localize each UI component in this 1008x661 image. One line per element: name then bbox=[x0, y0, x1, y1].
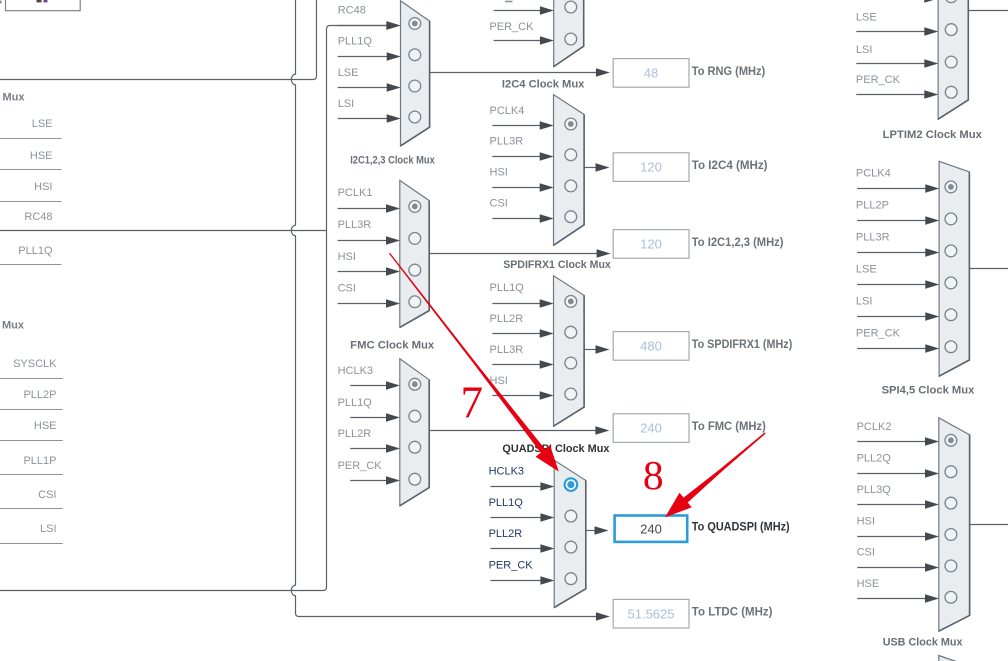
svg-text:USB Clock Mux: USB Clock Mux bbox=[883, 637, 964, 649]
svg-text:FMC Clock Mux: FMC Clock Mux bbox=[350, 339, 435, 351]
svg-text:RC48: RC48 bbox=[24, 211, 52, 223]
svg-text:To FMC (MHz): To FMC (MHz) bbox=[692, 421, 766, 433]
svg-text:SPDIFRX1 Clock Mux: SPDIFRX1 Clock Mux bbox=[503, 259, 611, 271]
svg-text:51.5625: 51.5625 bbox=[628, 606, 675, 621]
svg-text:CSI: CSI bbox=[857, 547, 875, 559]
svg-text:CSI: CSI bbox=[490, 198, 508, 210]
svg-text:LSI: LSI bbox=[338, 98, 355, 110]
svg-text:PLL2R: PLL2R bbox=[490, 313, 524, 325]
svg-text:240: 240 bbox=[640, 421, 662, 436]
svg-text:To I2C4 (MHz): To I2C4 (MHz) bbox=[692, 160, 768, 172]
svg-text:PLL2P: PLL2P bbox=[23, 389, 56, 401]
svg-text:HCLK3: HCLK3 bbox=[489, 465, 524, 477]
svg-text:Mux: Mux bbox=[3, 92, 26, 104]
svg-text:PER_CK: PER_CK bbox=[489, 21, 534, 33]
svg-text:PLL3R: PLL3R bbox=[856, 232, 890, 244]
svg-text:PLL2R: PLL2R bbox=[338, 428, 372, 440]
svg-text:PLL1Q: PLL1Q bbox=[338, 36, 373, 48]
svg-text:LSI: LSI bbox=[856, 44, 873, 56]
svg-text:HSI: HSI bbox=[857, 515, 875, 527]
svg-text:7: 7 bbox=[460, 378, 483, 428]
svg-text:PLL3R: PLL3R bbox=[338, 219, 372, 231]
svg-text:PLL1P: PLL1P bbox=[23, 455, 56, 467]
svg-text:RC48: RC48 bbox=[338, 4, 366, 16]
svg-text:HSE: HSE bbox=[34, 420, 57, 432]
svg-text:LSI: LSI bbox=[40, 523, 57, 535]
svg-text:I2C4 Clock Mux: I2C4 Clock Mux bbox=[502, 79, 585, 91]
svg-text:To I2C1,2,3 (MHz): To I2C1,2,3 (MHz) bbox=[692, 237, 784, 249]
svg-text:LSI: LSI bbox=[856, 296, 873, 308]
svg-text:LPTIM2 Clock Mux: LPTIM2 Clock Mux bbox=[883, 129, 983, 141]
svg-text:HSE: HSE bbox=[857, 578, 880, 590]
svg-text:HSI: HSI bbox=[34, 181, 52, 193]
svg-text:HSI: HSI bbox=[490, 167, 508, 179]
svg-text:8: 8 bbox=[643, 452, 664, 498]
svg-text:PLL2P: PLL2P bbox=[856, 200, 889, 212]
svg-text:PLL3R: PLL3R bbox=[490, 344, 524, 356]
svg-text:To SPDIFRX1 (MHz): To SPDIFRX1 (MHz) bbox=[692, 339, 793, 351]
svg-text:PLL1Q: PLL1Q bbox=[18, 245, 53, 257]
svg-text:QUADSPI Clock Mux: QUADSPI Clock Mux bbox=[502, 443, 610, 455]
svg-text:PER_CK: PER_CK bbox=[856, 328, 901, 340]
svg-text:PLL2R: PLL2R bbox=[489, 528, 523, 540]
svg-text:PCLK1: PCLK1 bbox=[338, 187, 373, 199]
svg-text:To LTDC (MHz): To LTDC (MHz) bbox=[692, 607, 773, 619]
svg-text:LSE: LSE bbox=[32, 118, 53, 130]
svg-text:120: 120 bbox=[640, 237, 662, 252]
svg-text:PLL3Q: PLL3Q bbox=[857, 484, 892, 496]
svg-text:48: 48 bbox=[644, 66, 658, 81]
svg-text:I2C1,2,3 Clock Mux: I2C1,2,3 Clock Mux bbox=[350, 154, 435, 166]
svg-text:HCLK3: HCLK3 bbox=[338, 365, 373, 377]
svg-text:To RNG (MHz): To RNG (MHz) bbox=[692, 66, 766, 78]
svg-text:PCLK4: PCLK4 bbox=[856, 168, 891, 180]
svg-text:PLL3R: PLL3R bbox=[490, 136, 524, 148]
svg-text:PCLK2: PCLK2 bbox=[857, 421, 892, 433]
svg-text:SPI4,5 Clock Mux: SPI4,5 Clock Mux bbox=[882, 385, 976, 397]
svg-text:PER_CK: PER_CK bbox=[489, 560, 534, 572]
svg-text:Mux: Mux bbox=[2, 320, 25, 332]
svg-text:HSI: HSI bbox=[338, 251, 356, 263]
svg-text:LSE: LSE bbox=[338, 67, 359, 79]
svg-text:CSI: CSI bbox=[38, 489, 56, 501]
svg-text:480: 480 bbox=[640, 339, 662, 354]
svg-text:PLL2Q: PLL2Q bbox=[857, 453, 892, 465]
svg-text:CSI: CSI bbox=[338, 283, 356, 295]
svg-text:To QUADSPI (MHz): To QUADSPI (MHz) bbox=[692, 522, 790, 534]
svg-text:PLL1Q: PLL1Q bbox=[338, 397, 373, 409]
svg-text:PLL1Q: PLL1Q bbox=[489, 497, 524, 509]
svg-text:LSE: LSE bbox=[856, 12, 877, 24]
svg-text:PER_CK: PER_CK bbox=[856, 74, 901, 86]
svg-text:240: 240 bbox=[640, 521, 662, 536]
svg-text:HSE: HSE bbox=[30, 150, 53, 162]
svg-text:LSE: LSE bbox=[856, 264, 877, 276]
svg-text:120: 120 bbox=[640, 160, 662, 175]
svg-text:PLL1Q: PLL1Q bbox=[490, 282, 525, 294]
svg-text:PER_CK: PER_CK bbox=[338, 460, 383, 472]
svg-text:SYSCLK: SYSCLK bbox=[13, 358, 57, 370]
svg-text:PCLK4: PCLK4 bbox=[490, 105, 525, 117]
